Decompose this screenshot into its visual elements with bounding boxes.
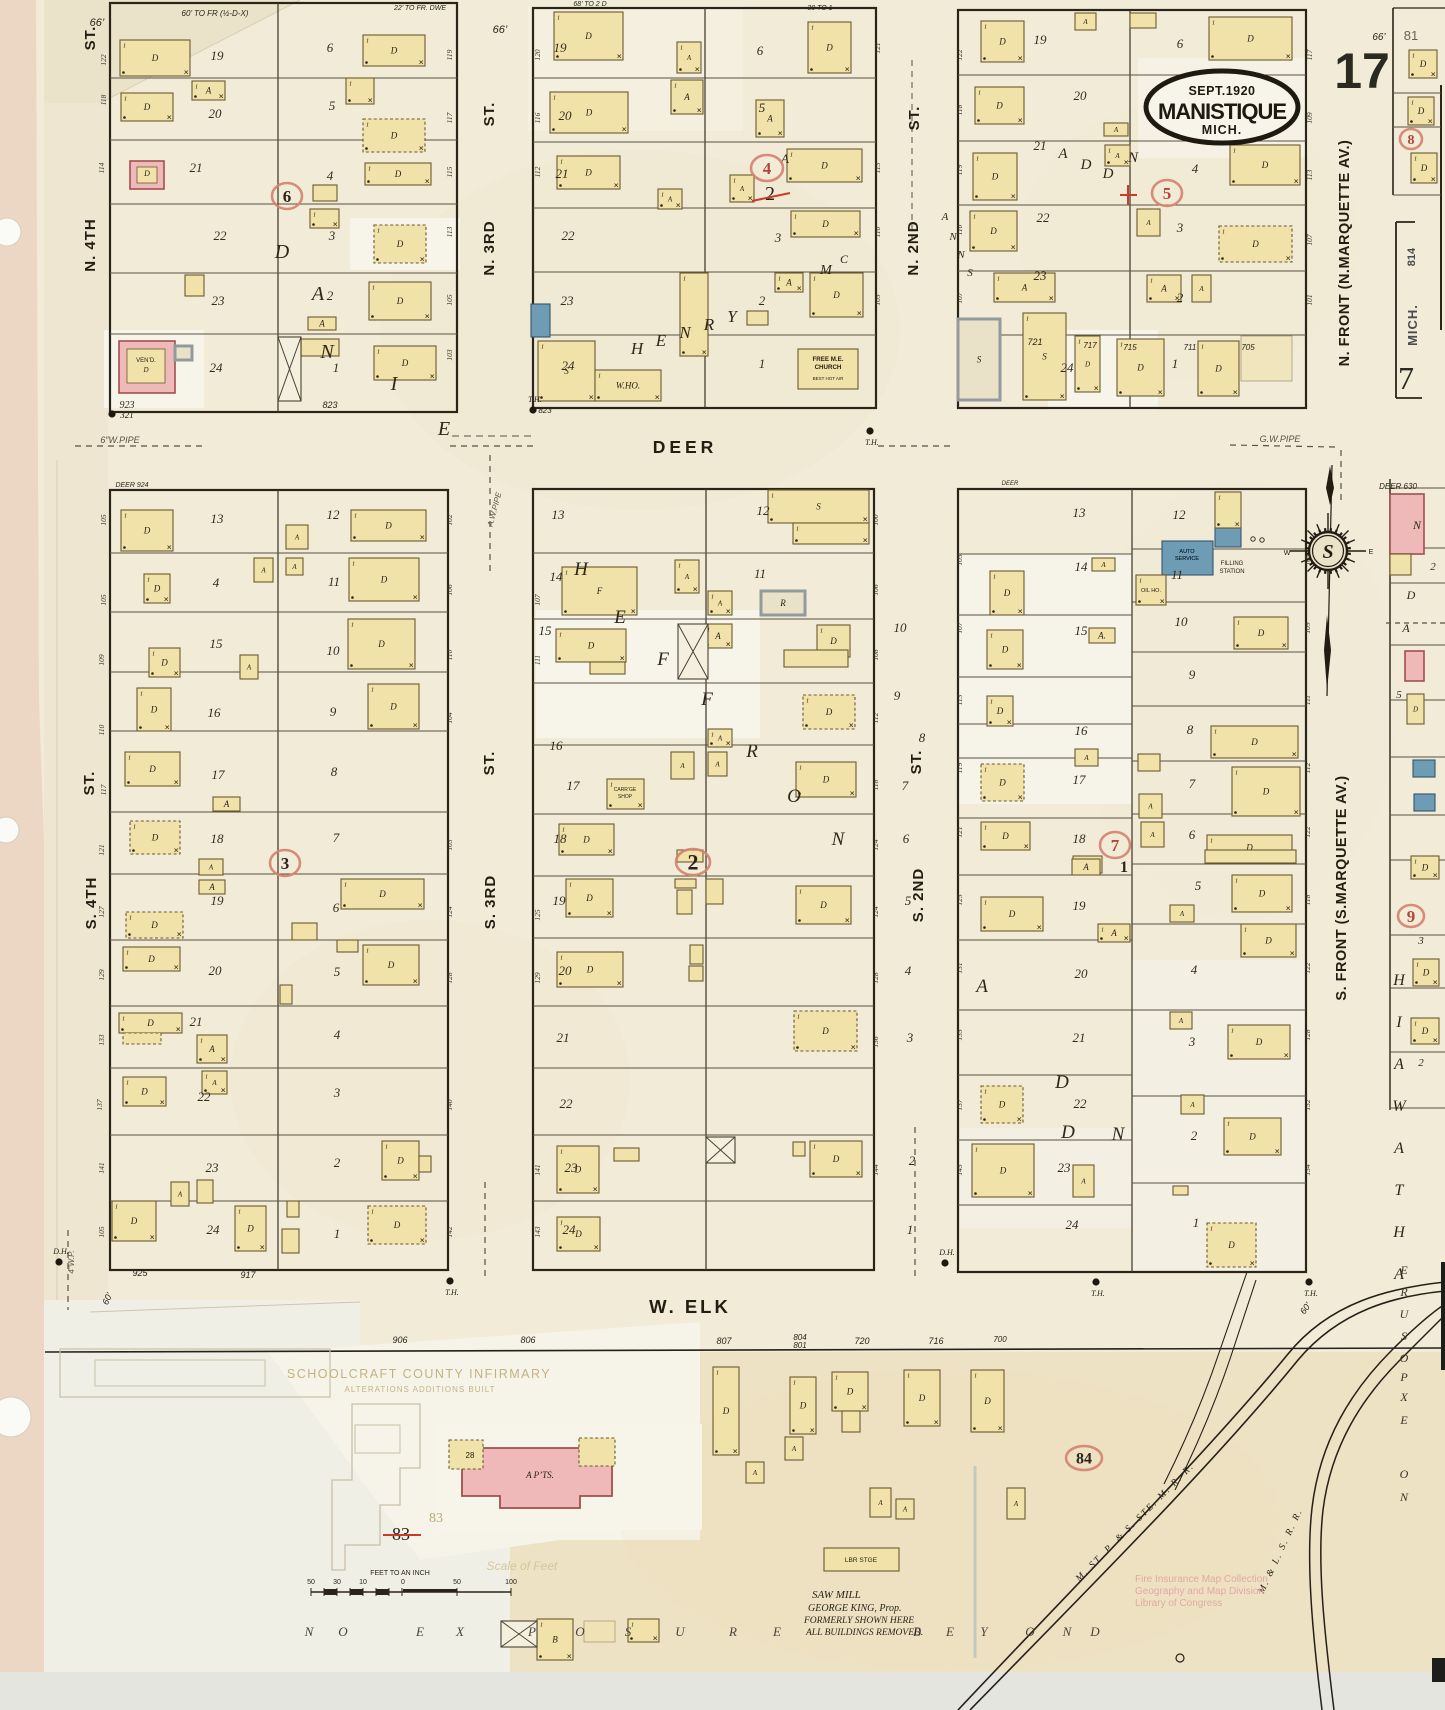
svg-text:7: 7 [902, 778, 909, 793]
svg-text:A.: A. [1097, 631, 1106, 641]
svg-text:A: A [1178, 1017, 1184, 1025]
svg-text:23: 23 [206, 1160, 220, 1175]
svg-text:T.H.: T.H. [445, 1288, 459, 1297]
svg-text:A: A [1013, 1500, 1019, 1508]
svg-text:A: A [1110, 928, 1117, 938]
svg-text:6: 6 [1189, 827, 1196, 842]
svg-text:D: D [983, 1396, 991, 1406]
svg-text:4: 4 [763, 159, 772, 178]
svg-text:50: 50 [307, 1579, 315, 1586]
svg-text:1: 1 [610, 782, 613, 789]
svg-text:1: 1 [978, 90, 981, 97]
svg-text:720: 720 [854, 1336, 869, 1346]
svg-text:1: 1 [352, 561, 355, 568]
svg-text:6″W.PIPE: 6″W.PIPE [100, 435, 140, 445]
svg-text:B: B [552, 1635, 558, 1645]
svg-text:1: 1 [1416, 962, 1419, 969]
svg-text:16: 16 [550, 738, 564, 753]
svg-text:134: 134 [1303, 1164, 1312, 1176]
svg-text:806: 806 [520, 1335, 535, 1345]
svg-text:1: 1 [1235, 770, 1238, 777]
svg-text:D: D [829, 636, 837, 646]
svg-text:D: D [1406, 588, 1416, 602]
svg-text:143: 143 [533, 1226, 542, 1238]
svg-text:110: 110 [445, 649, 454, 660]
svg-text:1: 1 [793, 1380, 796, 1387]
svg-text:23: 23 [565, 1160, 579, 1175]
svg-text:D: D [821, 219, 829, 229]
svg-text:113: 113 [1305, 169, 1314, 180]
svg-text:SCHOOLCRAFT COUNTY INFIRMARY: SCHOOLCRAFT COUNTY INFIRMARY [287, 1367, 551, 1381]
svg-text:30: 30 [333, 1579, 341, 1586]
svg-text:D: D [722, 1406, 730, 1416]
svg-text:D: D [1421, 1026, 1429, 1036]
svg-text:U: U [1400, 1307, 1410, 1321]
svg-text:D: D [1054, 1072, 1069, 1093]
svg-text:125: 125 [533, 909, 542, 921]
svg-text:FREE M.E.: FREE M.E. [813, 356, 844, 363]
svg-text:A: A [1021, 283, 1028, 293]
svg-text:721: 721 [1027, 337, 1042, 347]
svg-text:D: D [148, 764, 156, 774]
svg-text:717: 717 [1083, 341, 1097, 350]
svg-text:D: D [832, 1154, 840, 1164]
svg-text:A: A [208, 1044, 215, 1054]
svg-text:122: 122 [1303, 826, 1312, 838]
svg-text:D: D [1008, 909, 1016, 919]
svg-text:9: 9 [330, 704, 337, 719]
svg-text:D: D [999, 1166, 1007, 1176]
svg-text:1: 1 [128, 755, 131, 762]
svg-text:105: 105 [1303, 554, 1312, 566]
svg-text:ST.: ST. [481, 102, 498, 127]
svg-text:1: 1 [984, 24, 987, 31]
svg-text:Fire Insurance Map Collection: Fire Insurance Map Collection [1135, 1574, 1268, 1585]
svg-text:1: 1 [124, 96, 127, 103]
svg-text:A: A [1082, 862, 1089, 872]
svg-text:1: 1 [759, 356, 766, 371]
svg-text:141: 141 [97, 1162, 106, 1173]
svg-text:9: 9 [1407, 907, 1416, 926]
svg-text:D: D [820, 161, 828, 171]
svg-text:1: 1 [661, 192, 664, 199]
svg-text:CHURCH: CHURCH [815, 364, 842, 371]
svg-text:ST.: ST. [82, 26, 99, 51]
svg-text:105: 105 [445, 294, 454, 306]
svg-text:D: D [143, 526, 151, 536]
svg-text:118: 118 [1303, 894, 1312, 905]
svg-text:136: 136 [871, 1036, 880, 1048]
svg-text:1: 1 [976, 156, 979, 163]
svg-text:23: 23 [561, 293, 575, 308]
svg-text:1: 1 [126, 1080, 129, 1087]
svg-text:814: 814 [1406, 247, 1418, 266]
svg-text:A: A [1080, 1178, 1086, 1186]
svg-text:O: O [1400, 1351, 1409, 1365]
svg-text:M: M [819, 263, 833, 278]
svg-text:1: 1 [1231, 1028, 1234, 1035]
svg-text:19: 19 [211, 48, 225, 63]
svg-text:21: 21 [1073, 1030, 1086, 1045]
svg-text:105: 105 [97, 1226, 106, 1238]
svg-text:H: H [573, 559, 589, 580]
svg-text:107: 107 [533, 594, 542, 606]
svg-text:DEER: DEER [1002, 481, 1019, 487]
svg-text:5: 5 [334, 964, 341, 979]
svg-text:1: 1 [984, 767, 987, 774]
svg-text:4: 4 [327, 168, 334, 183]
svg-text:CARR’GE: CARR’GE [614, 787, 637, 793]
svg-text:N. 2ND: N. 2ND [905, 220, 922, 275]
svg-text:108: 108 [871, 649, 880, 661]
svg-text:GEORGE KING, Prop.: GEORGE KING, Prop. [808, 1603, 902, 1614]
svg-text:1: 1 [1193, 1215, 1200, 1230]
svg-text:AUTO: AUTO [1179, 549, 1195, 555]
svg-text:1: 1 [1026, 316, 1029, 323]
svg-text:112: 112 [871, 712, 880, 723]
svg-text:D: D [130, 1216, 138, 1226]
svg-text:22: 22 [562, 228, 576, 243]
svg-text:D: D [143, 102, 151, 112]
svg-text:D: D [396, 239, 404, 249]
svg-text:124: 124 [871, 839, 880, 851]
svg-text:D: D [1080, 157, 1092, 173]
svg-text:E: E [945, 1624, 954, 1639]
svg-text:W: W [1284, 550, 1291, 557]
svg-text:1: 1 [354, 513, 357, 520]
svg-text:17: 17 [1073, 772, 1087, 787]
svg-text:D: D [846, 1387, 854, 1397]
svg-text:A: A [902, 1506, 908, 1514]
svg-text:D: D [401, 358, 409, 368]
svg-text:D: D [380, 575, 388, 585]
svg-text:D: D [1227, 1240, 1235, 1250]
svg-text:A: A [791, 1445, 797, 1453]
svg-text:1: 1 [990, 699, 993, 706]
svg-text:122: 122 [1303, 962, 1312, 974]
svg-text:15: 15 [210, 636, 224, 651]
svg-text:105: 105 [873, 294, 882, 306]
svg-text:R: R [779, 598, 786, 608]
svg-text:1: 1 [1411, 100, 1414, 107]
svg-text:E: E [1399, 1413, 1408, 1427]
svg-text:A: A [683, 92, 690, 102]
svg-text:50: 50 [453, 1579, 461, 1586]
svg-text:117: 117 [1305, 49, 1314, 60]
svg-text:D: D [799, 1401, 807, 1411]
svg-text:21: 21 [190, 160, 203, 175]
svg-text:S. FRONT (S.MARQUETTE AV.): S. FRONT (S.MARQUETTE AV.) [1334, 775, 1350, 1000]
svg-text:D: D [1001, 645, 1009, 655]
svg-text:D: D [274, 241, 290, 263]
svg-text:D: D [1001, 831, 1009, 841]
svg-text:1: 1 [371, 687, 374, 694]
svg-text:O: O [1025, 1624, 1035, 1639]
svg-text:823: 823 [538, 406, 552, 415]
svg-text:823: 823 [322, 400, 337, 410]
svg-text:4: 4 [905, 963, 912, 978]
svg-text:112: 112 [533, 166, 542, 177]
svg-text:1: 1 [200, 1038, 203, 1045]
svg-text:D: D [153, 584, 161, 594]
svg-text:LBR STGE: LBR STGE [845, 1557, 878, 1564]
svg-text:100: 100 [505, 1579, 517, 1586]
svg-text:1: 1 [1414, 1021, 1417, 1028]
svg-text:A: A [785, 278, 792, 288]
svg-text:24: 24 [562, 358, 576, 373]
svg-text:100: 100 [871, 514, 880, 526]
svg-text:1: 1 [205, 1074, 208, 1081]
svg-text:I: I [1395, 1014, 1402, 1031]
svg-text:N. FRONT (N.MARQUETTE AV.): N. FRONT (N.MARQUETTE AV.) [1337, 140, 1353, 367]
svg-text:111: 111 [1303, 695, 1312, 705]
svg-text:128: 128 [871, 972, 880, 984]
svg-text:P: P [527, 1624, 536, 1639]
svg-text:D: D [146, 1018, 154, 1028]
svg-text:2: 2 [765, 183, 775, 205]
svg-text:1: 1 [1412, 53, 1415, 60]
svg-text:1: 1 [349, 81, 352, 88]
svg-text:T.H.: T.H. [1304, 1289, 1318, 1298]
svg-text:119: 119 [955, 164, 964, 175]
svg-text:18: 18 [1073, 831, 1087, 846]
svg-text:8: 8 [919, 730, 926, 745]
svg-text:1: 1 [126, 950, 129, 957]
svg-text:T.H.: T.H. [1091, 1289, 1105, 1298]
svg-text:142: 142 [445, 1226, 454, 1238]
svg-text:0: 0 [401, 1579, 405, 1586]
svg-text:12: 12 [327, 507, 341, 522]
svg-text:4: 4 [213, 575, 220, 590]
svg-text:A: A [752, 1469, 758, 1477]
svg-text:D: D [151, 53, 159, 63]
svg-text:6: 6 [333, 900, 340, 915]
svg-text:E: E [1399, 1263, 1408, 1277]
svg-text:A: A [1401, 621, 1410, 635]
svg-text:1: 1 [973, 214, 976, 221]
svg-text:O: O [787, 786, 801, 807]
svg-text:N: N [1399, 1490, 1409, 1504]
svg-text:A: A [766, 114, 773, 124]
svg-text:1: 1 [140, 691, 143, 698]
svg-text:125: 125 [955, 894, 964, 906]
svg-text:S: S [1401, 1329, 1407, 1343]
svg-text:20: 20 [209, 106, 223, 121]
svg-text:A: A [1082, 18, 1088, 26]
svg-text:917: 917 [240, 1270, 256, 1280]
svg-text:5: 5 [905, 893, 912, 908]
svg-text:S: S [1042, 352, 1047, 362]
svg-text:A: A [205, 86, 212, 96]
svg-text:C: C [840, 252, 849, 266]
svg-text:127: 127 [97, 906, 106, 918]
svg-text:S: S [816, 502, 821, 512]
svg-text:X: X [455, 1624, 465, 1639]
svg-text:1: 1 [1120, 859, 1128, 876]
svg-text:7: 7 [1398, 360, 1414, 396]
svg-text:1: 1 [123, 43, 126, 50]
svg-text:1: 1 [1212, 20, 1215, 27]
svg-text:21: 21 [1034, 138, 1047, 153]
svg-text:119: 119 [955, 762, 964, 773]
svg-text:8: 8 [1408, 133, 1415, 148]
svg-text:1: 1 [195, 84, 198, 91]
svg-text:110: 110 [97, 724, 106, 735]
svg-text:116: 116 [533, 112, 542, 123]
svg-text:1: 1 [368, 166, 371, 173]
svg-text:10: 10 [1175, 614, 1189, 629]
svg-text:5: 5 [759, 100, 766, 115]
svg-text:1: 1 [1244, 927, 1247, 934]
svg-text:D: D [390, 131, 398, 141]
svg-text:A: A [1100, 561, 1106, 569]
svg-text:D: D [1255, 1037, 1263, 1047]
svg-text:11: 11 [754, 566, 766, 581]
svg-text:D: D [1084, 361, 1090, 369]
svg-text:23: 23 [1034, 268, 1048, 283]
svg-text:1: 1 [975, 1147, 978, 1154]
svg-text:U: U [675, 1624, 686, 1639]
svg-text:A: A [877, 1499, 883, 1507]
svg-text:D: D [1261, 160, 1269, 170]
svg-text:SERVICE: SERVICE [1175, 556, 1199, 562]
svg-text:118: 118 [955, 104, 964, 115]
svg-text:17: 17 [567, 778, 581, 793]
svg-text:N. 3RD: N. 3RD [481, 220, 498, 275]
svg-text:20: 20 [209, 963, 223, 978]
svg-text:114: 114 [97, 162, 106, 173]
svg-text:D: D [582, 835, 590, 845]
svg-text:1: 1 [790, 152, 793, 159]
svg-text:F: F [700, 689, 713, 710]
svg-text:W.HO.: W.HO. [616, 381, 640, 391]
svg-text:17: 17 [1334, 43, 1390, 99]
svg-text:1: 1 [560, 159, 563, 166]
svg-text:106: 106 [445, 584, 454, 596]
svg-text:2: 2 [334, 1155, 341, 1170]
svg-text:1: 1 [778, 276, 781, 283]
svg-text:A: A [714, 631, 721, 641]
svg-text:1: 1 [990, 633, 993, 640]
svg-text:24: 24 [207, 1222, 221, 1237]
svg-text:1: 1 [598, 373, 601, 380]
svg-text:D: D [396, 1156, 404, 1166]
svg-text:715: 715 [1123, 343, 1137, 352]
svg-text:2: 2 [1177, 290, 1184, 305]
svg-text:16: 16 [208, 705, 222, 720]
svg-text:DEER 630: DEER 630 [1379, 482, 1417, 491]
svg-text:24: 24 [563, 1222, 577, 1237]
svg-text:1: 1 [984, 825, 987, 832]
svg-text:145: 145 [955, 1164, 964, 1176]
svg-text:A: A [1393, 1056, 1404, 1073]
svg-text:716: 716 [928, 1336, 943, 1346]
svg-text:D: D [1248, 1132, 1256, 1142]
svg-text:1: 1 [1414, 156, 1417, 163]
svg-text:23: 23 [1058, 1160, 1072, 1175]
svg-text:1: 1 [799, 889, 802, 896]
svg-text:1: 1 [678, 563, 681, 570]
svg-text:D: D [822, 775, 830, 785]
svg-text:115: 115 [445, 166, 454, 177]
svg-text:18: 18 [554, 831, 568, 846]
svg-text:1: 1 [541, 344, 544, 351]
svg-text:1: 1 [813, 1144, 816, 1151]
svg-text:102: 102 [445, 514, 454, 526]
svg-text:D: D [832, 290, 840, 300]
svg-text:1: 1 [797, 1014, 800, 1021]
svg-text:D: D [585, 893, 593, 903]
svg-text:D: D [147, 954, 155, 964]
svg-text:3: 3 [333, 1085, 341, 1100]
svg-text:D: D [1250, 737, 1258, 747]
svg-text:19: 19 [211, 893, 225, 908]
svg-text:S. 3RD: S. 3RD [482, 875, 499, 929]
svg-text:N: N [956, 249, 965, 261]
svg-text:E: E [655, 331, 667, 350]
svg-text:133: 133 [97, 1034, 106, 1046]
svg-text:D: D [1136, 363, 1144, 373]
svg-text:2: 2 [759, 293, 766, 308]
svg-text:1: 1 [811, 25, 814, 32]
svg-text:1: 1 [1218, 495, 1221, 502]
svg-text:A: A [208, 864, 214, 872]
svg-text:W. ELK: W. ELK [649, 1296, 731, 1317]
svg-text:Y: Y [727, 307, 738, 326]
svg-text:A: A [1145, 219, 1151, 227]
svg-text:A: A [260, 567, 266, 575]
svg-text:700: 700 [993, 1335, 1007, 1344]
svg-text:131: 131 [955, 962, 964, 973]
svg-text:12: 12 [757, 503, 771, 518]
svg-text:OIL HO.: OIL HO. [1141, 588, 1161, 594]
svg-text:16: 16 [1075, 723, 1089, 738]
svg-text:711: 711 [1184, 343, 1197, 352]
svg-text:A: A [1189, 1101, 1195, 1109]
svg-text:ST.: ST. [906, 106, 923, 131]
svg-text:81: 81 [1404, 28, 1418, 43]
svg-text:D: D [150, 920, 158, 930]
svg-text:H: H [1392, 972, 1406, 989]
svg-text:A: A [739, 185, 745, 193]
svg-text:A: A [714, 761, 720, 769]
svg-text:1: 1 [1172, 356, 1179, 371]
svg-text:1: 1 [344, 882, 347, 889]
svg-text:19: 19 [1073, 898, 1087, 913]
svg-text:3: 3 [906, 1030, 914, 1045]
svg-text:D: D [1262, 787, 1270, 797]
svg-text:VEN’D.: VEN’D. [136, 358, 156, 364]
svg-text:17: 17 [212, 767, 226, 782]
svg-text:1: 1 [716, 1370, 719, 1377]
svg-text:D: D [586, 965, 594, 975]
svg-text:A: A [717, 600, 723, 608]
svg-text:15: 15 [539, 623, 553, 638]
svg-text:1: 1 [1078, 339, 1081, 346]
svg-text:30 TO 1: 30 TO 1 [807, 5, 832, 12]
svg-text:121: 121 [955, 826, 964, 837]
svg-text:103: 103 [445, 349, 454, 361]
svg-text:1: 1 [771, 493, 774, 500]
svg-text:A: A [1114, 152, 1120, 160]
svg-text:D: D [1258, 889, 1266, 899]
svg-text:4: 4 [334, 1027, 341, 1042]
svg-text:R: R [1399, 1285, 1408, 1299]
svg-text:6: 6 [283, 187, 292, 206]
svg-text:A: A [974, 976, 988, 997]
svg-text:A: A [318, 319, 325, 329]
svg-text:20: 20 [1074, 88, 1088, 103]
